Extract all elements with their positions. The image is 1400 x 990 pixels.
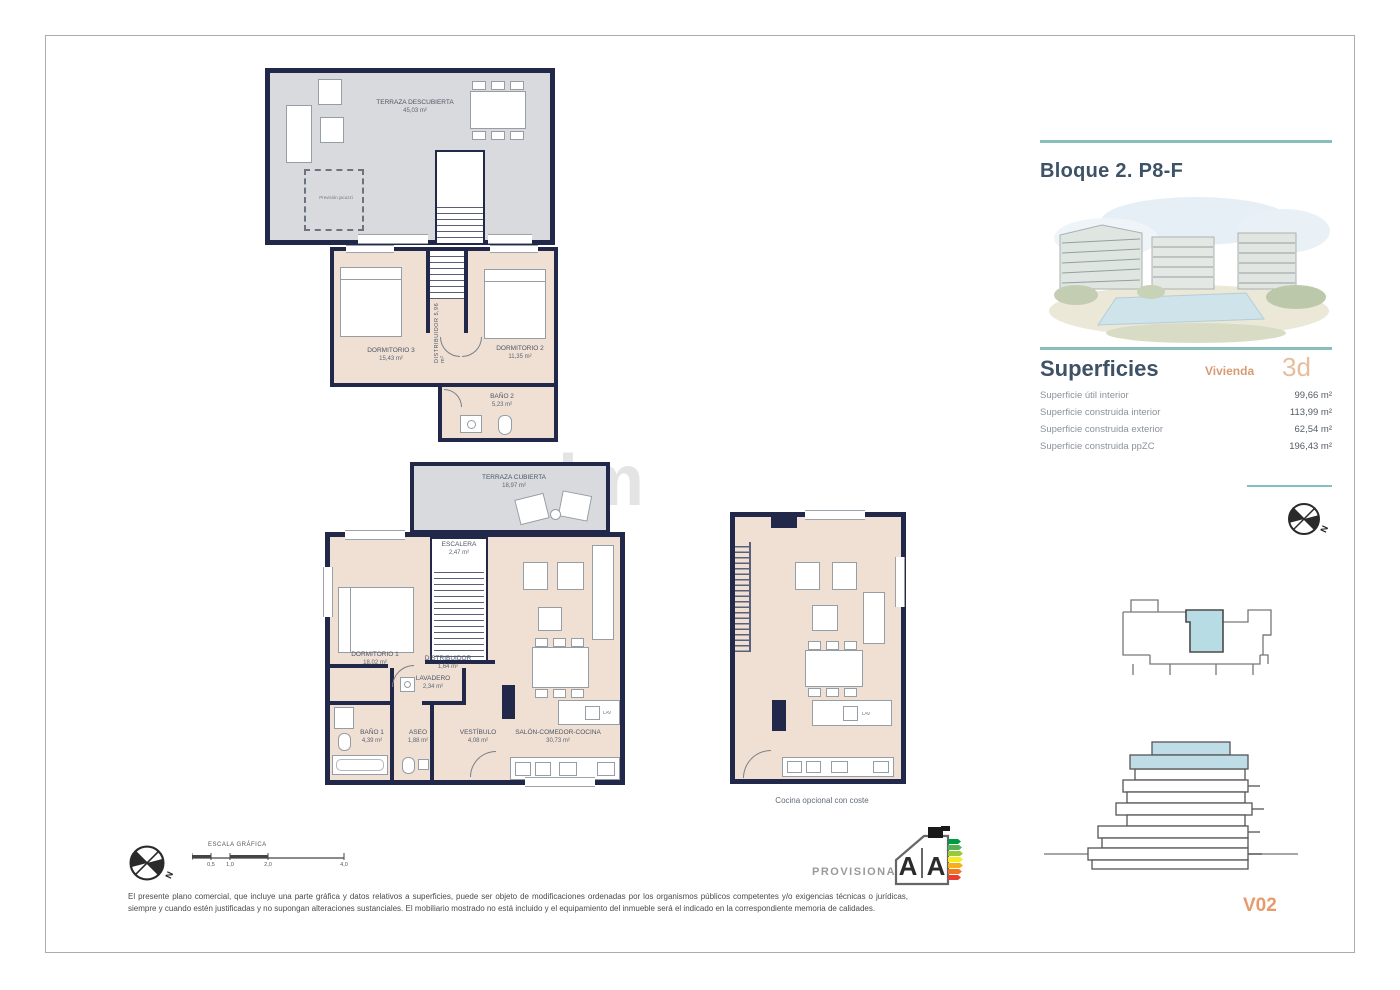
chair	[808, 688, 821, 697]
chair	[553, 689, 566, 698]
chair	[844, 641, 857, 650]
window	[525, 777, 595, 787]
room-label-dormitorio-3: DORMITORIO 3 15,43 m²	[367, 347, 415, 364]
furniture-sofa	[592, 545, 614, 640]
furniture-bed	[340, 267, 402, 337]
chair	[510, 81, 524, 90]
entry-door-arc	[470, 751, 496, 777]
room-label-bano-2: BAÑO 2 5,23 m²	[490, 393, 514, 410]
stair-shaft: ESCALERA 2,47 m²	[430, 537, 488, 662]
door-arc	[444, 389, 462, 407]
door-arc	[743, 750, 771, 778]
chair	[535, 689, 548, 698]
chair	[472, 81, 486, 90]
graphic-scale: ESCALA GRÁFICA 0,5 1,0 2,0 4,0	[192, 842, 352, 870]
kitchen-island: LAV	[812, 700, 892, 726]
room-label-vestibulo: VESTÍBULO 4,08 m²	[460, 729, 496, 746]
interior-wall	[430, 705, 434, 780]
energy-rating-icon: A A	[888, 826, 964, 890]
building-rendering	[1046, 193, 1332, 343]
furniture-armchair	[318, 79, 342, 105]
chair	[535, 638, 548, 647]
kitchen-counter	[782, 757, 894, 777]
sink-unit	[787, 761, 802, 773]
elevation-diagram	[1040, 702, 1350, 877]
furniture-dining-table	[470, 91, 526, 129]
room-label-distribuidor: DISTRIBUIDOR 1,64 m²	[425, 655, 472, 672]
chair	[808, 641, 821, 650]
compass-icon	[124, 840, 170, 886]
scale-label: ESCALA GRÁFICA	[208, 842, 267, 848]
superficie-row: Superficie construida interior 113,99 m²	[1040, 407, 1332, 423]
superficie-row: Superficie útil interior 99,66 m²	[1040, 390, 1332, 406]
window	[895, 557, 905, 607]
superficie-row: Superficie construida ppZC 196,43 m²	[1040, 441, 1332, 457]
stairs	[437, 202, 483, 243]
vivienda-label: Vivienda	[1205, 364, 1254, 378]
teal-divider	[1040, 140, 1332, 143]
stairs	[434, 567, 484, 657]
plan-terraza-cubierta: TERRAZA CUBIERTA 18,97 m²	[410, 462, 610, 534]
plan-version: V02	[1243, 895, 1277, 917]
wall-header	[771, 517, 797, 528]
chair	[571, 638, 584, 647]
fridge-unit	[873, 761, 889, 773]
chair	[510, 131, 524, 140]
plan-upper-bedrooms: DISTRIBUIDOR 5,96 m² DORMITORIO 3 15,43 …	[330, 247, 558, 387]
stove-unit	[559, 762, 577, 776]
chair	[491, 131, 505, 140]
structural-pillar	[772, 700, 786, 731]
highlighted-floor	[1130, 755, 1248, 769]
teal-divider	[1040, 347, 1332, 350]
bed-pillow	[485, 270, 545, 282]
compass-north: N	[1283, 498, 1335, 548]
block-title: Bloque 2. P8-F	[1040, 160, 1183, 183]
fixture-toilet	[498, 415, 512, 435]
bathtub-inner	[336, 759, 384, 771]
furniture-coffee-table	[812, 605, 838, 631]
room-label-salon-comedor-cocina: SALÓN-COMEDOR-COCINA 30,73 m²	[515, 729, 601, 746]
sink-unit	[535, 762, 551, 776]
scale-tick: 0,5	[207, 862, 215, 868]
energy-letter-emissions: A	[927, 851, 946, 881]
stair-shaft	[435, 150, 485, 245]
furniture-sofa	[286, 105, 312, 163]
chair	[491, 81, 505, 90]
fixture-toilet	[338, 733, 351, 751]
superficie-row: Superficie construida exterior 62,54 m²	[1040, 424, 1332, 440]
sink-basin	[467, 420, 476, 429]
furniture-bed	[484, 269, 546, 339]
furniture-bed	[338, 587, 414, 653]
furniture-dining-table	[805, 650, 863, 687]
sink-unit	[515, 762, 531, 776]
room-label-terraza-cubierta: TERRAZA CUBIERTA 18,97 m²	[482, 474, 546, 491]
bed-pillow	[341, 268, 401, 280]
stairs	[430, 251, 464, 299]
appliance-tag: LAV	[603, 710, 611, 715]
dishwasher-icon	[843, 706, 858, 721]
interior-wall	[330, 701, 394, 705]
window	[345, 530, 405, 540]
kitchen-island: LAV	[558, 700, 620, 725]
plan-upper-bathroom: BAÑO 2 5,23 m²	[438, 383, 558, 442]
window	[805, 510, 865, 520]
window	[490, 245, 538, 253]
door-arc	[462, 337, 482, 357]
room-label-dormitorio-1: DORMITORIO 1 18,02 m²	[351, 651, 399, 668]
bed-pillow	[339, 588, 351, 652]
furniture-armchair	[832, 562, 857, 590]
terrace-stairs	[735, 542, 751, 652]
scale-tick: 2,0	[264, 862, 272, 868]
compass-north: N	[124, 840, 180, 892]
furniture-dining-table	[532, 647, 589, 688]
plan-main-floor: ESCALERA 2,47 m²	[325, 532, 625, 785]
chair	[553, 638, 566, 647]
plan-terraza-descubierta: TERRAZA DESCUBIERTA 45,03 m² Previsión j…	[265, 68, 555, 245]
room-label-lavadero: LAVADERO 2,34 m²	[416, 675, 450, 692]
window	[323, 567, 333, 617]
vivienda-type: 3d	[1282, 352, 1311, 383]
jacuzzi-provision-area: Previsión jacuzzi	[304, 169, 364, 231]
compass-icon	[1283, 498, 1325, 540]
window	[358, 234, 428, 244]
chair	[571, 689, 584, 698]
teal-divider-short	[1247, 485, 1332, 487]
optional-kitchen-caption: Cocina opcional con coste	[775, 796, 868, 805]
room-label-bano-1: BAÑO 1 4,39 m²	[360, 729, 384, 746]
furniture-sofa	[863, 592, 885, 644]
interior-wall	[462, 668, 466, 705]
interior-wall	[426, 251, 430, 333]
room-label-escalera: ESCALERA 2,47 m²	[442, 541, 477, 558]
chair	[826, 641, 839, 650]
fixture-sink	[460, 415, 482, 433]
furniture-lounge-chair	[558, 490, 592, 521]
room-label-dormitorio-2: DORMITORIO 2 11,35 m²	[496, 345, 544, 362]
chair	[826, 688, 839, 697]
room-label-distribuidor: DISTRIBUIDOR 5,96 m²	[434, 303, 446, 363]
jacuzzi-provision-label: Previsión jacuzzi	[319, 195, 353, 201]
highlighted-floor	[1152, 742, 1230, 755]
room-label-terraza-descubierta: TERRAZA DESCUBIERTA 45,03 m²	[376, 99, 453, 116]
fixture-toilet	[402, 757, 415, 774]
scale-bar	[192, 852, 348, 860]
chair	[472, 131, 486, 140]
furniture-side-table	[550, 509, 561, 520]
scale-tick: 1,0	[226, 862, 234, 868]
appliance-tag: LAV	[862, 711, 870, 716]
furniture-armchair	[557, 562, 584, 590]
fixture-bathtub	[332, 755, 388, 775]
plan-kitchen-optional: LAV	[730, 512, 906, 784]
highlighted-unit	[1186, 610, 1223, 652]
chair	[844, 688, 857, 697]
furniture-lounge-chair	[514, 493, 549, 525]
structural-pillar	[502, 685, 515, 719]
interior-wall	[422, 701, 466, 705]
floorplan-sheet: lm TERRAZA DESCUBIERTA 45,03 m² Previsió…	[0, 0, 1400, 990]
interior-wall	[464, 251, 468, 333]
furniture-armchair	[320, 117, 344, 143]
fixture-sink	[334, 707, 354, 729]
furniture-armchair	[795, 562, 820, 590]
superficies-heading: Superficies	[1040, 356, 1159, 382]
energy-letter-consumption: A	[899, 851, 918, 881]
window	[346, 245, 394, 253]
legal-disclaimer: El presente plano comercial, que incluye…	[128, 891, 908, 915]
furniture-coffee-table	[538, 607, 562, 631]
sink-unit	[806, 761, 821, 773]
furniture-armchair	[523, 562, 548, 590]
fridge-unit	[597, 762, 615, 776]
fixture-sink	[418, 759, 429, 770]
dishwasher-icon	[585, 706, 600, 720]
window	[488, 234, 532, 244]
room-label-aseo: ASEO 1,88 m²	[408, 729, 428, 746]
scale-tick: 4,0	[340, 862, 348, 868]
stove-unit	[831, 761, 848, 773]
door-arc	[392, 665, 414, 687]
key-plan-diagram	[1093, 570, 1288, 675]
